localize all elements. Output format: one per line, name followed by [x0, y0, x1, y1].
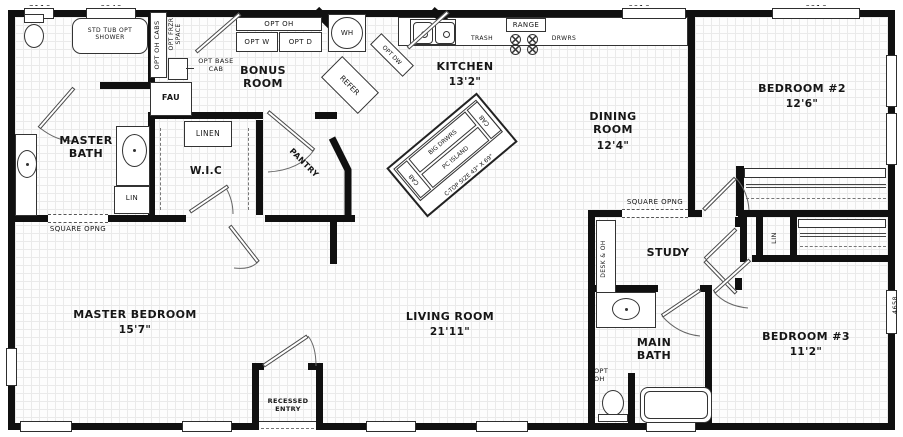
room-label-bedroom2: BEDROOM #2 — [740, 82, 864, 95]
burner-icon — [527, 44, 538, 55]
window-size-label: 6040 — [84, 0, 138, 6]
wall — [8, 423, 895, 430]
room-label-bonus: BONUS ROOM — [228, 64, 298, 90]
window — [182, 421, 232, 432]
wall — [108, 215, 186, 222]
opt-oh-bath-label: OPT OH — [594, 368, 612, 384]
square-opening-label: SQUARE OPNG — [620, 198, 690, 206]
base-cabinet — [168, 58, 188, 80]
wall — [588, 217, 595, 423]
wall — [628, 373, 635, 423]
wall — [736, 166, 744, 216]
washer-label: OPT W — [236, 38, 278, 46]
closet-door — [744, 168, 886, 178]
range-label: RANGE — [506, 21, 546, 29]
window-size-label: 6016 — [612, 0, 666, 6]
wall — [735, 278, 742, 290]
square-opening — [48, 214, 108, 223]
closet-rod — [746, 184, 886, 185]
wall — [330, 222, 337, 264]
floor-plan: 3110 6040 6016 6016 4658 SQUARE OPNG SQU… — [0, 0, 903, 437]
wall — [8, 10, 895, 17]
room-dim-living: 21'11" — [388, 326, 512, 339]
closet-rod — [800, 236, 886, 237]
bathtub-label: STD TUB OPT SHOWER — [82, 27, 138, 41]
window — [20, 421, 72, 432]
porch-threshold-dashed — [261, 428, 314, 429]
opt-frzr-label: OPT FRZR SPACE — [169, 9, 191, 59]
wall — [790, 217, 797, 260]
wall — [252, 363, 259, 423]
room-label-bedroom3: BEDROOM #3 — [742, 330, 870, 343]
bathtub-inner — [644, 391, 708, 419]
wall — [316, 363, 323, 423]
wall — [700, 285, 712, 292]
entry-label: RECESSED ENTRY — [260, 398, 316, 414]
wall — [315, 112, 337, 119]
room-dim-bedroom2: 12'6" — [740, 98, 864, 111]
sink — [17, 150, 37, 178]
wall — [688, 10, 695, 217]
toilet-bowl — [24, 24, 44, 48]
porch-threshold — [259, 421, 316, 433]
room-label-dining: DINING ROOM — [580, 110, 646, 136]
window — [6, 348, 17, 386]
wall — [256, 120, 263, 215]
burner-icon — [510, 44, 521, 55]
wall — [265, 215, 355, 222]
room-dim-master-bedroom: 15'7" — [55, 324, 215, 337]
wall — [738, 210, 888, 217]
window — [476, 421, 528, 432]
room-label-kitchen: KITCHEN — [430, 60, 500, 73]
closet-shelf-dashed — [248, 128, 249, 210]
sink — [122, 134, 147, 167]
wall — [588, 210, 622, 217]
opt-oh-cabs-label: OPT OH CABS — [154, 9, 164, 81]
window-size-label: 3110 — [18, 0, 62, 6]
leader-line — [186, 68, 194, 69]
closet-rod — [746, 187, 886, 188]
wall — [686, 210, 702, 217]
opt-oh-label: OPT OH — [236, 20, 322, 28]
wall — [756, 217, 763, 260]
closet-shelf-dashed — [746, 198, 886, 199]
linen-hall-label: LIN — [771, 220, 781, 256]
window — [366, 421, 416, 432]
window — [622, 8, 686, 19]
closet-shelf-dashed — [800, 246, 886, 247]
toilet-bowl — [602, 390, 624, 416]
window — [886, 113, 897, 165]
closet-door — [798, 219, 886, 228]
toilet-tank — [24, 14, 44, 23]
square-opening — [622, 209, 688, 218]
wall — [308, 363, 323, 370]
toilet-tank — [598, 414, 628, 422]
room-dim-dining: 12'4" — [580, 140, 646, 153]
square-opening-label: SQUARE OPNG — [40, 225, 116, 233]
dryer-label: OPT D — [279, 38, 322, 46]
room-label-wic: W.I.C — [178, 165, 234, 178]
wall — [752, 255, 888, 262]
window-size-label-side: 4658 — [892, 285, 902, 325]
room-label-living: LIVING ROOM — [388, 310, 512, 323]
room-label-master-bath: MASTER BATH — [50, 134, 122, 160]
drawers-label: DRWRS — [544, 35, 584, 42]
window — [772, 8, 860, 19]
linen-closet-label: LINEN — [184, 129, 232, 138]
sink — [612, 298, 640, 320]
window — [886, 55, 897, 107]
room-label-master-bedroom: MASTER BEDROOM — [55, 308, 215, 321]
wall — [735, 217, 742, 227]
linen-cabinet-label: LIN — [114, 194, 150, 202]
room-dim-bedroom3: 11'2" — [742, 346, 870, 359]
room-dim-kitchen: 13'2" — [430, 76, 500, 89]
room-label-study: STUDY — [630, 246, 706, 259]
sink-basin — [435, 22, 455, 44]
room-label-main-bath: MAIN BATH — [628, 336, 680, 362]
trash-label: TRASH — [462, 35, 502, 42]
desk-label: DESK & OH — [601, 224, 611, 294]
closet-shelf-dashed — [160, 128, 161, 210]
window-size-label: 6016 — [788, 0, 844, 6]
furnace-label: FAU — [150, 93, 192, 103]
water-heater: WH — [331, 17, 363, 49]
closet-rod — [800, 233, 886, 234]
wall — [100, 82, 150, 89]
wall — [8, 215, 48, 222]
